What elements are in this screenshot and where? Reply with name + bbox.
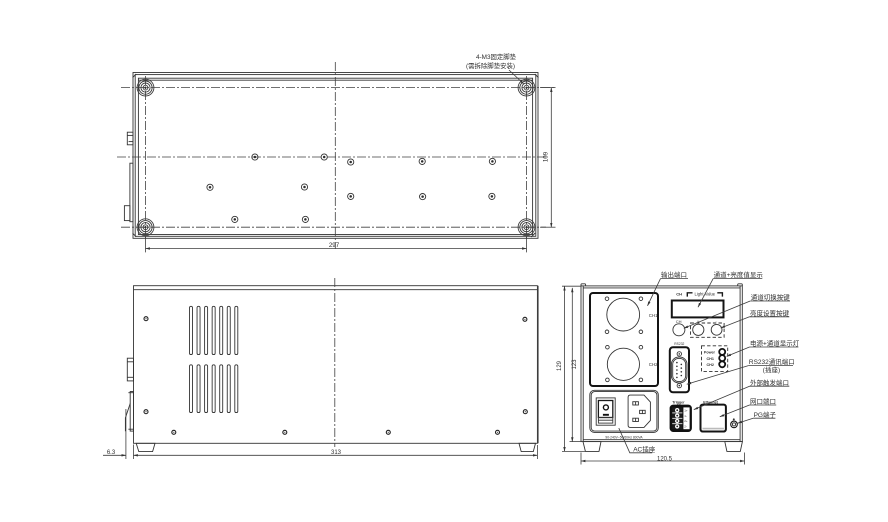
svg-text:网口端口: 网口端口 xyxy=(750,397,776,406)
svg-text:2-: 2- xyxy=(684,425,687,429)
svg-text:RS232: RS232 xyxy=(674,342,684,346)
svg-text:-: - xyxy=(716,320,717,324)
svg-text:(插座): (插座) xyxy=(763,365,780,374)
svg-text:(需拆除脚垫安装): (需拆除脚垫安装) xyxy=(466,61,515,70)
svg-text:RS232通讯端口: RS232通讯端口 xyxy=(749,357,795,366)
svg-text:1+: 1+ xyxy=(684,408,688,412)
svg-text:313: 313 xyxy=(331,450,342,456)
svg-text:120.5: 120.5 xyxy=(657,456,673,462)
svg-text:CH1: CH1 xyxy=(649,313,658,318)
svg-text:亮度设置按键: 亮度设置按键 xyxy=(750,308,790,317)
svg-text:6.3: 6.3 xyxy=(107,450,116,456)
svg-text:输出端口: 输出端口 xyxy=(661,270,687,279)
svg-text:90-240V~50/60Hz 800VA: 90-240V~50/60Hz 800VA xyxy=(605,436,643,440)
svg-text:Trigger: Trigger xyxy=(672,401,685,405)
svg-text:通道切换按键: 通道切换按键 xyxy=(751,293,791,302)
svg-text:CH2: CH2 xyxy=(707,363,714,367)
svg-text:1-: 1- xyxy=(684,414,687,418)
svg-text:CH2: CH2 xyxy=(649,362,658,367)
svg-text:Power: Power xyxy=(704,351,716,355)
svg-text:2+: 2+ xyxy=(684,419,688,423)
svg-text:129: 129 xyxy=(557,360,563,371)
svg-text:CH1: CH1 xyxy=(707,357,714,361)
svg-text:123: 123 xyxy=(572,359,578,370)
svg-text:外部触发端口: 外部触发端口 xyxy=(750,378,789,387)
svg-text:109: 109 xyxy=(543,151,550,162)
svg-text:4-M3固定脚垫: 4-M3固定脚垫 xyxy=(476,52,517,61)
svg-text:297: 297 xyxy=(329,242,340,249)
svg-text:CH: CH xyxy=(676,292,682,297)
svg-text:电源+通道显示灯: 电源+通道显示灯 xyxy=(750,339,800,348)
svg-text:AC插座: AC插座 xyxy=(633,445,656,454)
svg-text:CH: CH xyxy=(676,319,682,324)
svg-text:通道+亮度值显示: 通道+亮度值显示 xyxy=(714,270,764,279)
svg-text:PG端子: PG端子 xyxy=(754,410,777,419)
